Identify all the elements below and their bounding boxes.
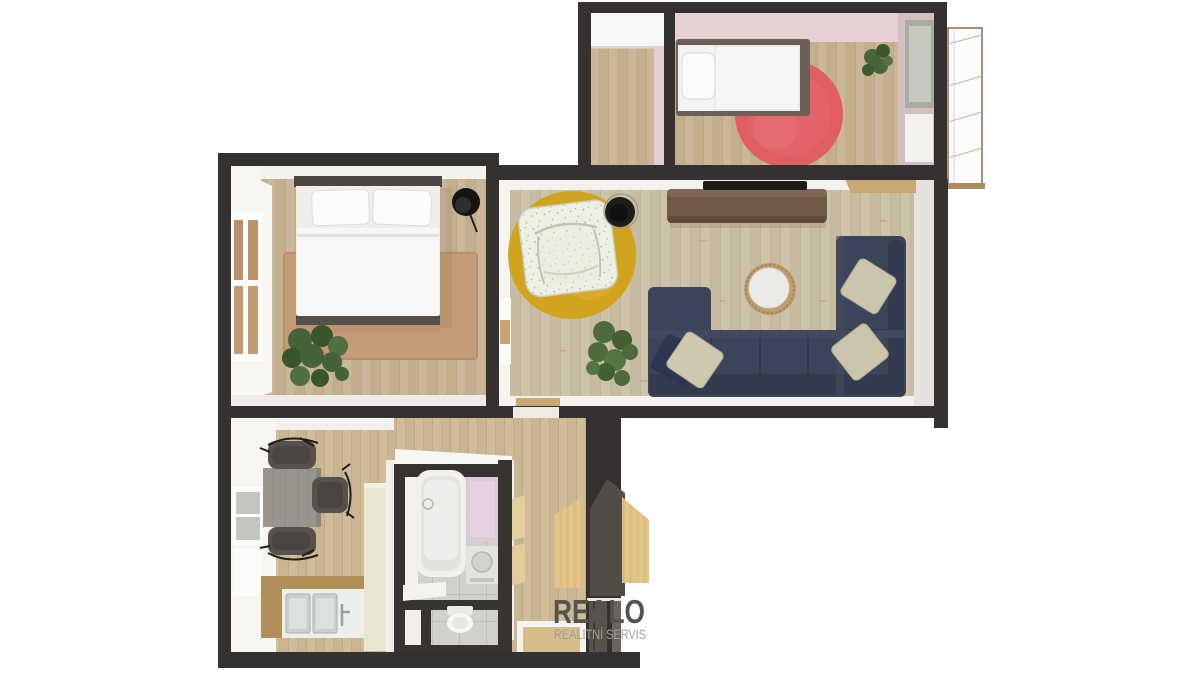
svg-text:REALITNÍ SERVIS: REALITNÍ SERVIS: [554, 627, 646, 642]
svg-text:REALO: REALO: [553, 593, 645, 630]
